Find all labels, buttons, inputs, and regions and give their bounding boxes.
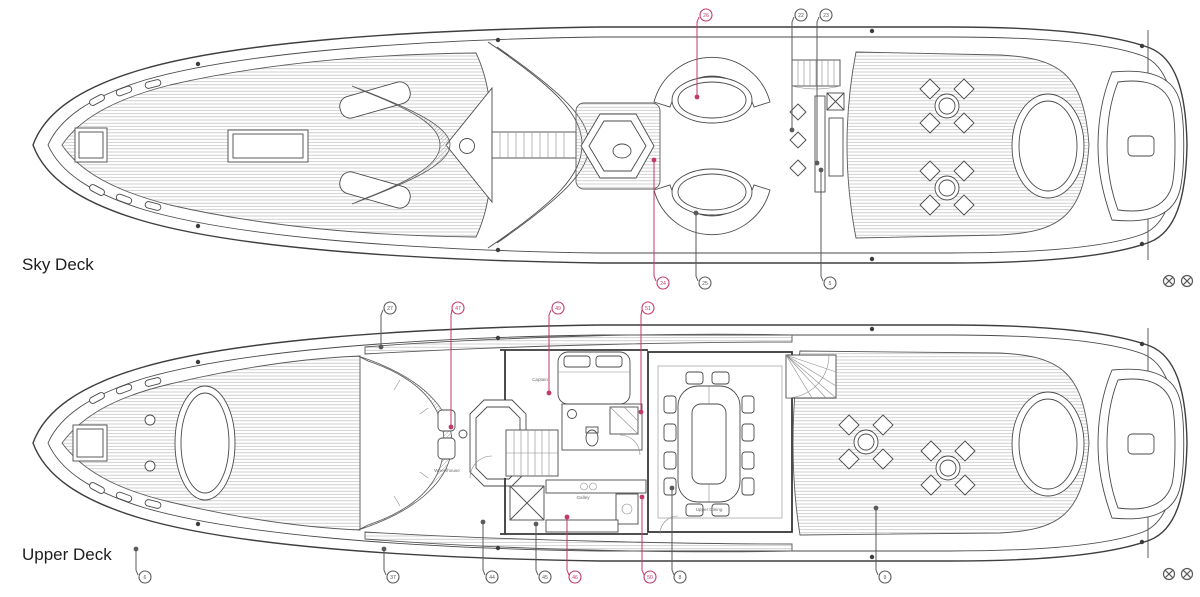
galley-label: Galley	[576, 495, 590, 500]
callout-target-dot	[640, 495, 645, 500]
upper-dining-label: Upper Dining	[696, 507, 723, 512]
callout-target-dot	[694, 211, 699, 216]
sky-jacuzzi	[576, 103, 660, 189]
upper-aft-deck	[786, 351, 1089, 535]
wheelhouse-label: Wheelhouse	[434, 468, 460, 473]
callout-number: 5	[829, 281, 832, 287]
sky-aft-deck	[847, 52, 1089, 238]
callout-target-dot	[134, 547, 139, 552]
callout-target-dot	[382, 547, 387, 552]
yacht-deck-plan: Sky Deck	[0, 0, 1200, 597]
callout-number: 51	[645, 306, 651, 312]
upper-aft-lounge	[1012, 392, 1084, 496]
upper-stern-tender	[1098, 369, 1184, 519]
callout-target-dot	[652, 158, 657, 163]
sky-deck-plan: Sky Deck	[22, 27, 1187, 274]
callout-number: 23	[823, 13, 829, 19]
callout-number: 46	[572, 575, 578, 581]
registration-mark-icon	[1182, 276, 1193, 287]
callout-number: 49	[555, 306, 561, 312]
callout-target-dot	[565, 515, 570, 520]
sky-aft-lounge	[1012, 94, 1084, 198]
callout-target-dot	[379, 345, 384, 350]
upper-staircase	[506, 430, 558, 476]
callout-target-dot	[819, 168, 824, 173]
callout-number: 25	[702, 281, 708, 287]
deck-plan-drawing: Sky Deck	[0, 0, 1200, 597]
callout-number: 37	[390, 575, 396, 581]
callout-target-dot	[639, 410, 644, 415]
callout-target-dot	[534, 522, 539, 527]
callout-target-dot	[874, 506, 879, 511]
callout-number: 9	[884, 575, 887, 581]
callout-6: 6	[134, 547, 151, 583]
callout-number: 26	[703, 13, 709, 19]
callout-number: 27	[387, 306, 393, 312]
callout-number: 47	[455, 306, 461, 312]
callout-target-dot	[449, 425, 454, 430]
sky-stairs	[792, 60, 840, 89]
registration-mark-icon	[1164, 569, 1175, 580]
sky-stern-tender	[1098, 71, 1184, 221]
callout-target-dot	[670, 486, 675, 491]
callout-number: 50	[647, 575, 653, 581]
captain-cabin-label: Captain	[532, 377, 548, 382]
upper-deck-plan: Wheelhouse Captain	[22, 325, 1187, 564]
registration-mark-icon	[1164, 276, 1175, 287]
upper-deck-label: Upper Deck	[22, 545, 112, 564]
callout-target-dot	[481, 520, 486, 525]
registration-mark-icon	[1182, 569, 1193, 580]
callout-target-dot	[790, 128, 795, 133]
callout-number: 8	[679, 575, 682, 581]
callout-number: 6	[144, 575, 147, 581]
callout-target-dot	[815, 161, 820, 166]
callout-target-dot	[547, 391, 552, 396]
callout-target-dot	[695, 95, 700, 100]
sky-deck-label: Sky Deck	[22, 255, 94, 274]
callout-number: 22	[798, 13, 804, 19]
callout-number: 44	[489, 575, 495, 581]
callout-number: 45	[542, 575, 548, 581]
callout-number: 24	[660, 281, 666, 287]
